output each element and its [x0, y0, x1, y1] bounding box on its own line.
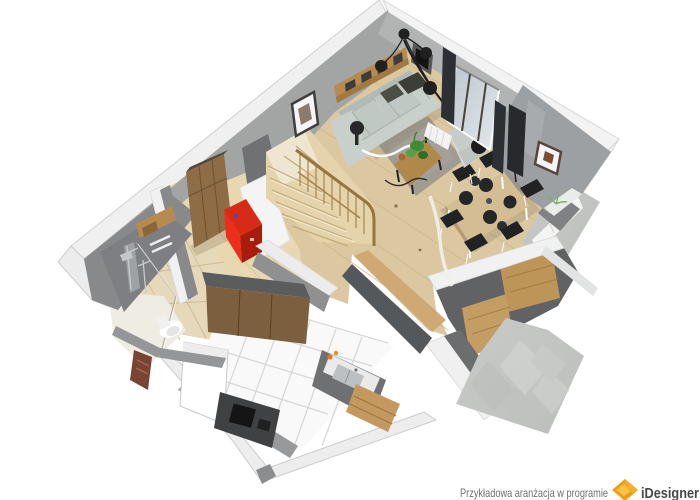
svg-text:Przykładowa aranżacja w progra: Przykładowa aranżacja w programie [460, 486, 608, 500]
svg-text:iDesigner: iDesigner [641, 485, 699, 500]
